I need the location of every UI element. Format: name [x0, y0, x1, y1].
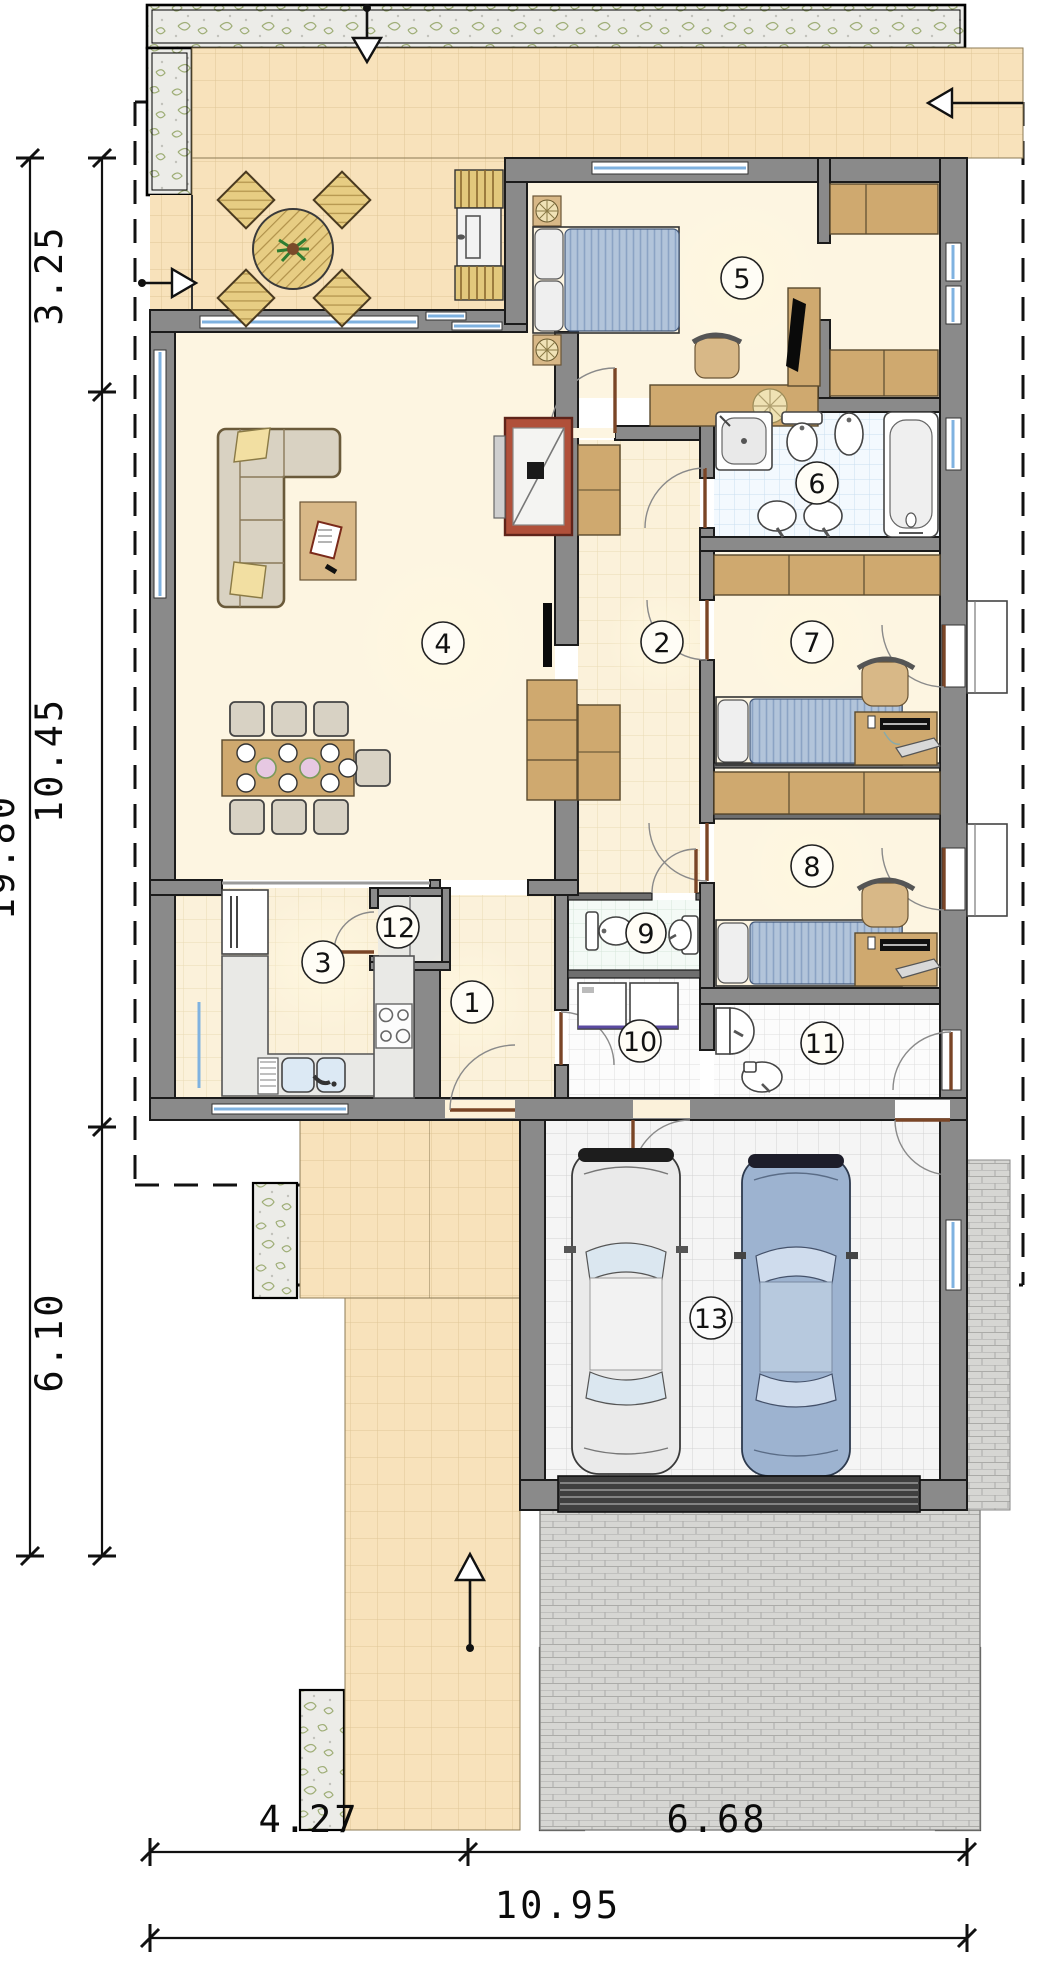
room-badge-1: 1 — [451, 981, 493, 1023]
dining-chair — [314, 800, 348, 834]
dressing-window-2 — [946, 286, 961, 324]
room-badge-11: 11 — [801, 1022, 843, 1064]
kitchen-south-window — [212, 1104, 348, 1114]
dim-6-68: 6.68 — [666, 1798, 767, 1841]
dining-chair — [272, 800, 306, 834]
bedroom5-window — [592, 162, 748, 174]
desk — [855, 712, 940, 765]
coffee-table — [300, 502, 356, 580]
dim-3-25: 3.25 — [28, 224, 71, 325]
wardrobe — [714, 555, 940, 595]
room-number: 12 — [381, 913, 415, 944]
cooktop-icon — [376, 1004, 412, 1048]
floor-plan-svg: 1 2 3 4 5 6 7 8 9 10 11 12 13 3.25 10.45… — [0, 0, 1055, 1983]
room-number: 6 — [808, 469, 825, 500]
lamp-icon — [536, 200, 558, 222]
grill-sideboard — [455, 170, 503, 300]
room-badge-9: 9 — [626, 913, 666, 953]
fireplace — [494, 418, 572, 535]
room-badge-8: 8 — [791, 845, 833, 887]
wardrobe — [714, 772, 940, 814]
garage-door — [558, 1476, 920, 1512]
bathtub — [884, 412, 938, 537]
room-number: 2 — [653, 628, 670, 659]
room-badge-2: 2 — [641, 621, 683, 663]
garage-window — [946, 1220, 961, 1290]
washing-machine-icon — [578, 983, 626, 1029]
wardrobe — [830, 184, 938, 234]
room-number: 4 — [434, 629, 451, 660]
fridge-icon — [222, 890, 268, 954]
room-badge-3: 3 — [302, 941, 344, 983]
shower-tray — [716, 412, 772, 470]
room-number: 7 — [803, 628, 820, 659]
room-number: 10 — [623, 1027, 657, 1058]
floor-plan-page: 1 2 3 4 5 6 7 8 9 10 11 12 13 3.25 10.45… — [0, 0, 1055, 1983]
room-number: 3 — [314, 948, 331, 979]
living-top-window — [200, 316, 418, 328]
room-badge-4: 4 — [422, 622, 464, 664]
bidet-icon — [835, 413, 863, 455]
room-number: 13 — [694, 1304, 728, 1335]
dining-chair — [356, 750, 390, 786]
desk-chair — [858, 880, 914, 927]
room-badge-5: 5 — [721, 257, 763, 299]
car-silver — [564, 1148, 688, 1474]
room-number: 5 — [733, 264, 750, 295]
dim-10-45: 10.45 — [28, 697, 71, 823]
dim-4-27: 4.27 — [258, 1798, 359, 1841]
desk-chair — [858, 659, 914, 706]
dining-chair — [230, 702, 264, 736]
room-number: 8 — [803, 852, 820, 883]
dining-chair — [272, 702, 306, 736]
room-badge-13: 13 — [690, 1297, 732, 1339]
pillow-icon — [230, 562, 266, 598]
car-blue — [734, 1154, 858, 1476]
tv-cabinet — [527, 680, 577, 800]
dim-19-80: 19.80 — [0, 794, 23, 920]
dining-chair — [230, 800, 264, 834]
room-badge-10: 10 — [619, 1020, 661, 1062]
room-badge-12: 12 — [377, 906, 419, 948]
dining-chair — [314, 702, 348, 736]
room-number: 1 — [463, 988, 480, 1019]
room-badge-6: 6 — [796, 462, 838, 504]
desk — [855, 933, 940, 986]
kitchen-sink-icon — [258, 1058, 345, 1094]
living-left-window — [154, 350, 166, 598]
dressing-window-1 — [946, 243, 961, 281]
pillow-icon — [234, 428, 270, 462]
room-badge-7: 7 — [791, 621, 833, 663]
tv-icon — [543, 603, 552, 667]
dim-left-segments: 3.25 10.45 6.10 — [28, 149, 116, 1565]
lamp-icon — [536, 339, 558, 361]
dim-6-10: 6.10 — [28, 1291, 71, 1392]
dim-10-95: 10.95 — [495, 1884, 621, 1927]
toilet-icon — [742, 1062, 782, 1092]
dim-bottom-total: 10.95 — [141, 1884, 976, 1952]
desk-chair — [693, 335, 741, 378]
bathroom6-window — [946, 418, 961, 470]
room-number: 9 — [637, 919, 654, 950]
room-number: 11 — [805, 1029, 839, 1060]
